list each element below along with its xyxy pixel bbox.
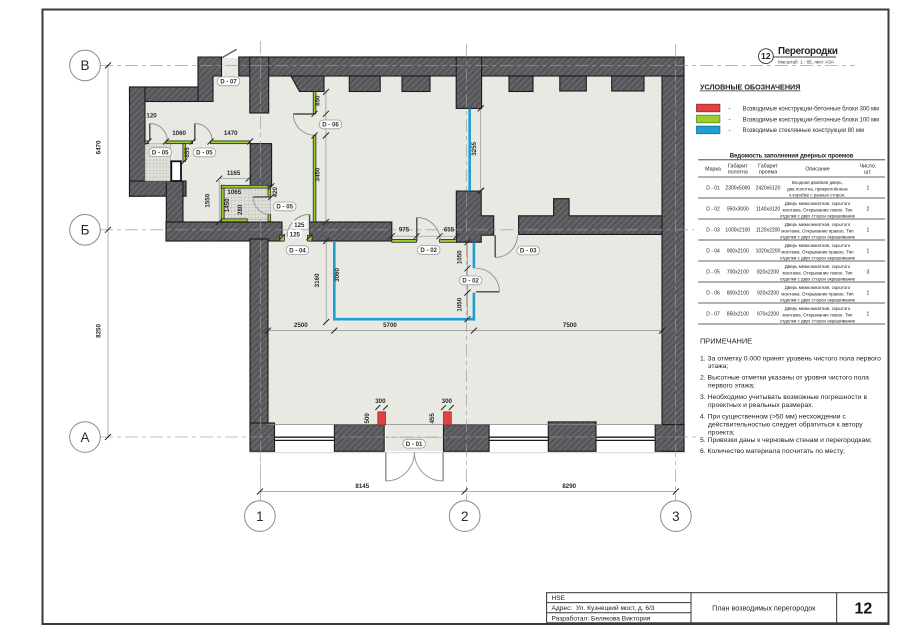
svg-text:D - 04: D - 04 — [706, 248, 720, 254]
svg-text:1140х3120: 1140х3120 — [756, 206, 781, 212]
svg-text:2. Высотные отметки указаны от: 2. Высотные отметки указаны от уровня чи… — [700, 375, 869, 382]
svg-text:850: 850 — [315, 95, 322, 106]
svg-text:проекта;: проекта; — [708, 429, 735, 436]
svg-text:проектных и реальных размерах.: проектных и реальных размерах. — [708, 402, 814, 409]
svg-text:950х3000: 950х3000 — [727, 206, 749, 212]
svg-text:1000х2100: 1000х2100 — [725, 227, 750, 233]
svg-text:D - 03: D - 03 — [520, 248, 537, 255]
svg-text:УСЛОВНЫЕ ОБОЗНАЧЕНИЯ: УСЛОВНЫЕ ОБОЗНАЧЕНИЯ — [700, 83, 800, 92]
svg-text:655: 655 — [444, 226, 455, 233]
svg-text:3. Необходимо учитывать возмож: 3. Необходимо учитывать возможные погреш… — [700, 393, 867, 401]
svg-text:455: 455 — [429, 413, 436, 424]
svg-text:820х2200: 820х2200 — [757, 269, 779, 275]
svg-text:D - 05: D - 05 — [276, 204, 293, 211]
svg-text:HSE: HSE — [552, 595, 566, 602]
svg-text:975: 975 — [399, 226, 410, 233]
svg-text:2: 2 — [461, 509, 469, 524]
svg-text:Б: Б — [81, 223, 90, 238]
svg-text:1120х2200: 1120х2200 — [756, 227, 781, 233]
svg-text:420: 420 — [272, 186, 279, 197]
svg-text:к коробке с разных сторон.: к коробке с разных сторон. — [789, 193, 845, 198]
svg-text:Дверь межкомнатная, скрытого: Дверь межкомнатная, скрытого — [785, 243, 851, 248]
svg-text:D - 05: D - 05 — [152, 149, 169, 156]
svg-text:-: - — [729, 127, 731, 134]
svg-text:два полотна, прикреплённые: два полотна, прикреплённые — [787, 186, 848, 191]
svg-text:А: А — [80, 430, 89, 445]
svg-text:5. Привязки даны к черновым ст: 5. Привязки даны к черновым стенам и пер… — [700, 437, 872, 444]
svg-text:D - 04: D - 04 — [289, 247, 306, 254]
svg-text:8250: 8250 — [95, 324, 102, 338]
svg-text:Возводимые стеклянные конструк: Возводимые стеклянные конструкции 80 мм — [743, 127, 864, 134]
svg-text:6470: 6470 — [95, 140, 102, 154]
svg-text:12: 12 — [761, 51, 771, 61]
svg-text:План возводимых перегородок: План возводимых перегородок — [712, 603, 816, 612]
svg-text:отделки с двух сторон окрашива: отделки с двух сторон окрашивание — [780, 319, 856, 324]
svg-text:этажа;: этажа; — [708, 363, 728, 370]
svg-text:ПРИМЕЧАНИЕ: ПРИМЕЧАНИЕ — [700, 337, 752, 346]
svg-text:1020х2200: 1020х2200 — [756, 248, 781, 254]
svg-text:1. За отметку 0.000 принят уро: 1. За отметку 0.000 принят уровень чисто… — [700, 355, 881, 362]
svg-text:D - 03: D - 03 — [706, 227, 720, 233]
svg-text:120: 120 — [146, 113, 157, 120]
svg-text:125: 125 — [294, 222, 305, 229]
svg-text:1: 1 — [867, 227, 870, 233]
svg-text:Дверь межкомнатная, скрытого: Дверь межкомнатная, скрытого — [785, 285, 851, 290]
svg-text:отделки с двух сторон окрашива: отделки с двух сторон окрашивание — [780, 277, 856, 282]
svg-text:монтажа. Открывание правое. Ти: монтажа. Открывание правое. Тип — [781, 249, 854, 254]
svg-text:D - 02: D - 02 — [420, 247, 437, 254]
svg-text:полотна: полотна — [728, 169, 748, 175]
svg-text:1065: 1065 — [227, 189, 241, 196]
svg-text:отделки с двух сторон окрашива: отделки с двух сторон окрашивание — [780, 214, 856, 219]
svg-text:3060: 3060 — [334, 268, 341, 282]
svg-text:900х2100: 900х2100 — [727, 248, 749, 254]
svg-text:6. Количество материала посчит: 6. Количество материала посчитать по мес… — [700, 448, 845, 455]
svg-text:D - 06: D - 06 — [322, 122, 339, 129]
svg-text:В: В — [80, 58, 89, 73]
svg-text:1050: 1050 — [457, 297, 464, 311]
svg-text:Описание: Описание — [805, 166, 829, 172]
svg-text:D - 02: D - 02 — [462, 278, 479, 285]
svg-text:монтажа. Открывание левое. Тип: монтажа. Открывание левое. Тип — [783, 207, 854, 212]
svg-text:Дверь межкомнатная, скрытого: Дверь межкомнатная, скрытого — [785, 201, 851, 206]
svg-text:монтажа. Открывание правое. Ти: монтажа. Открывание правое. Тип — [781, 291, 854, 296]
svg-text:1: 1 — [867, 290, 870, 296]
svg-text:3: 3 — [672, 509, 680, 524]
svg-text:Дверь межкомнатная, скрытого: Дверь межкомнатная, скрытого — [785, 264, 851, 269]
svg-text:1165: 1165 — [227, 170, 241, 177]
svg-text:7500: 7500 — [563, 322, 577, 329]
svg-text:1550: 1550 — [204, 193, 211, 207]
svg-text:800х2100: 800х2100 — [727, 290, 749, 296]
svg-text:шт.: шт. — [864, 169, 872, 175]
svg-text:1: 1 — [256, 509, 264, 524]
svg-text:проема: проема — [759, 169, 777, 175]
svg-text:D - 05: D - 05 — [706, 269, 720, 275]
svg-text:8290: 8290 — [562, 483, 576, 490]
svg-text:1050: 1050 — [457, 250, 464, 264]
svg-text:первого этажа;: первого этажа; — [708, 383, 755, 390]
svg-text:1: 1 — [867, 248, 870, 254]
svg-text:D - 07: D - 07 — [706, 311, 720, 317]
svg-text:Марка: Марка — [705, 166, 721, 172]
svg-text:2500: 2500 — [294, 322, 308, 329]
svg-text:920х2200: 920х2200 — [757, 290, 779, 296]
svg-text:125: 125 — [290, 232, 301, 239]
svg-text:Дверь межкомнатная, скрытого: Дверь межкомнатная, скрытого — [785, 306, 851, 311]
svg-text:D - 02: D - 02 — [706, 206, 720, 212]
svg-text:отделки с двух сторон окрашива: отделки с двух сторон окрашивание — [780, 298, 856, 303]
svg-text:2300х5000: 2300х5000 — [725, 185, 750, 191]
svg-text:1060: 1060 — [172, 130, 186, 137]
svg-text:Разработал: Белякова Виктория: Разработал: Белякова Виктория — [552, 614, 651, 622]
svg-text:монтажа. Открывание левое. Тип: монтажа. Открывание левое. Тип — [783, 312, 854, 317]
svg-text:280: 280 — [237, 204, 244, 215]
svg-text:300: 300 — [375, 398, 386, 405]
svg-text:действительностью следует обра: действительностью следует обратиться к а… — [708, 420, 863, 428]
svg-text:970х2200: 970х2200 — [757, 311, 779, 317]
svg-text:отделки с двух сторон окрашива: отделки с двух сторон окрашивание — [780, 235, 856, 240]
svg-text:Возводимые конструкции-бетонны: Возводимые конструкции-бетонные блоки 30… — [743, 105, 880, 112]
svg-text:Перегородки: Перегородки — [778, 46, 838, 57]
svg-text:3160: 3160 — [314, 273, 321, 287]
svg-text:3450: 3450 — [315, 167, 322, 181]
svg-text:Возводимые конструкции-бетонны: Возводимые конструкции-бетонные блоки 10… — [743, 116, 880, 123]
svg-text:700х2100: 700х2100 — [727, 269, 749, 275]
svg-text:1: 1 — [867, 185, 870, 191]
svg-text:Масштаб 1 : 85, лист А3А: Масштаб 1 : 85, лист А3А — [778, 60, 835, 65]
svg-text:Адрес: Ул. Кузнецкий мост, д.: Адрес: Ул. Кузнецкий мост, д. 6/3 — [552, 604, 655, 612]
svg-text:12: 12 — [855, 601, 873, 618]
svg-text:Ведомость заполнения дверных п: Ведомость заполнения дверных проемов — [730, 152, 854, 159]
svg-text:8145: 8145 — [355, 483, 369, 490]
svg-text:1: 1 — [867, 311, 870, 317]
svg-text:D - 01: D - 01 — [706, 185, 720, 191]
svg-text:Входная двойная дверь,: Входная двойная дверь, — [792, 179, 843, 185]
svg-text:3255: 3255 — [471, 141, 478, 155]
svg-text:1450: 1450 — [224, 198, 231, 212]
svg-text:300: 300 — [442, 398, 453, 405]
svg-text:2: 2 — [867, 206, 870, 212]
svg-text:D - 06: D - 06 — [706, 290, 720, 296]
svg-text:2420х5120: 2420х5120 — [756, 185, 781, 191]
svg-text:850х2100: 850х2100 — [727, 311, 749, 317]
svg-text:монтажа. Открывание левое. Тип: монтажа. Открывание левое. Тип — [783, 270, 854, 275]
svg-text:D - 01: D - 01 — [406, 441, 423, 448]
svg-text:отделки с двух сторон окрашива: отделки с двух сторон окрашивание — [780, 256, 856, 261]
svg-text:Дверь межкомнатная, скрытого: Дверь межкомнатная, скрытого — [785, 222, 851, 227]
svg-text:655: 655 — [184, 147, 191, 158]
svg-text:-: - — [729, 116, 731, 123]
svg-text:5700: 5700 — [383, 322, 397, 329]
svg-text:D - 05: D - 05 — [196, 150, 213, 157]
svg-text:монтажа. Открывание правое. Ти: монтажа. Открывание правое. Тип — [781, 228, 854, 233]
svg-text:-: - — [729, 105, 731, 112]
svg-text:1470: 1470 — [224, 130, 238, 137]
svg-text:4. При существенном (>50 мм): 4. При существенном (>50 мм) несхождении… — [700, 413, 846, 420]
svg-text:D - 07: D - 07 — [220, 79, 237, 86]
svg-text:500: 500 — [364, 413, 371, 424]
svg-text:3: 3 — [867, 269, 870, 275]
